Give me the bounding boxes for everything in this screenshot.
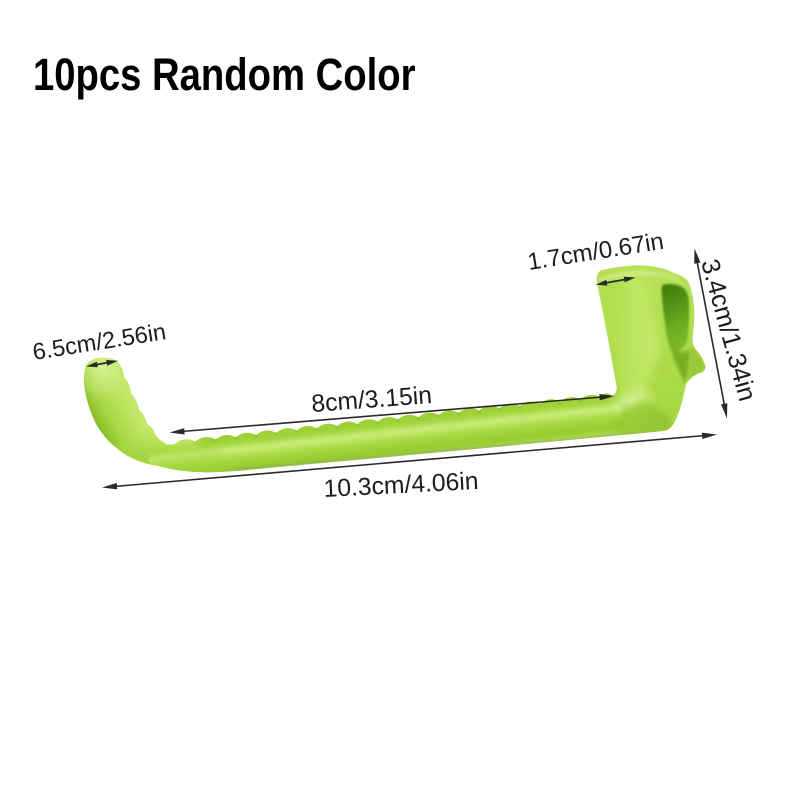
svg-text:10pcs Random Color: 10pcs Random Color <box>33 49 415 100</box>
